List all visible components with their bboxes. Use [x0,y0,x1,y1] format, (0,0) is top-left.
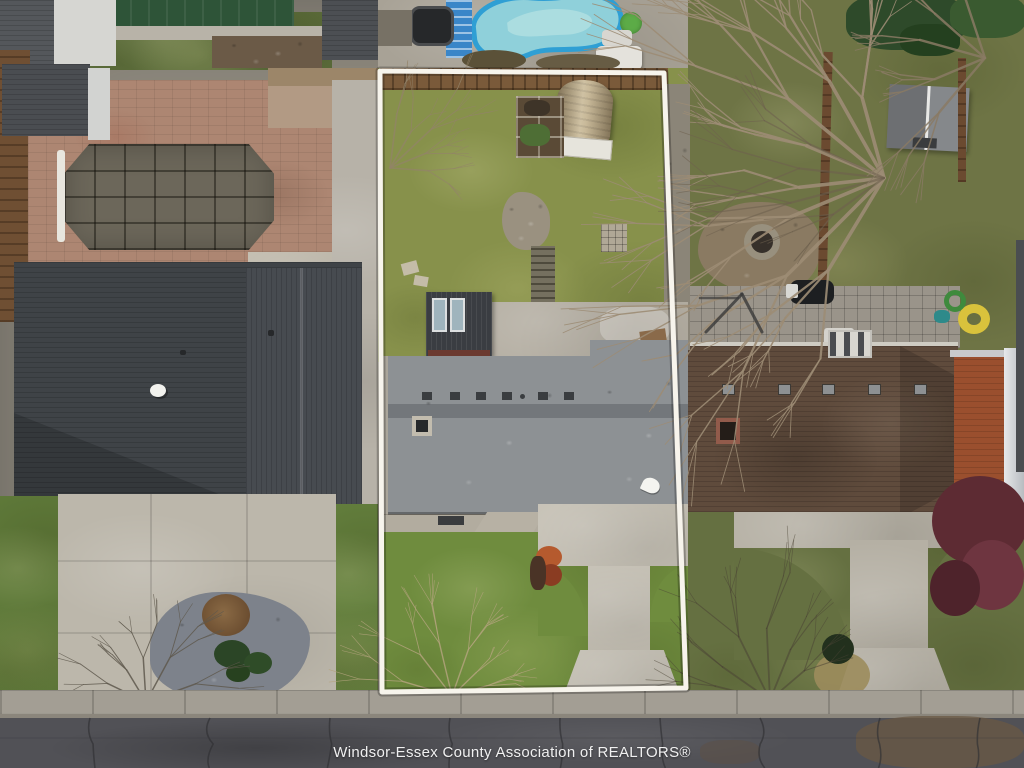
left-roof-ext-b [246,508,362,538]
far-house-fascia [950,350,1010,357]
quonset-doors [557,136,613,161]
brown-ornamental-bush [202,594,250,636]
left-lawn-strip-right [336,504,378,702]
realtor-watermark: Windsor-Essex County Association of REAL… [0,744,1024,761]
pool-toy-teal [934,310,950,323]
hot-tub [410,6,454,46]
roof-vent-dot-2 [180,350,186,355]
driveway-joint [58,560,336,562]
roof-vent [564,392,574,400]
brick-pool-patio [28,80,378,270]
pool-shed-roof [2,64,90,136]
roof-vent-small [520,394,525,399]
roof-vent [422,392,432,400]
satellite-dish-subject [640,475,663,496]
roof-vent [722,384,735,395]
tan-cabana [268,68,378,128]
right-backyard-grass [688,0,1024,352]
driveway-joint [246,494,248,706]
patio-canopy [378,10,412,46]
lot-back-fence [380,68,668,90]
house-left-gap-walk [380,356,392,514]
bbq-smoker [790,280,834,304]
pool-float-donut [958,304,990,334]
driveway-joint [150,494,152,706]
brick-chimney [716,418,740,444]
roof-vent [502,392,512,400]
road [0,718,1024,768]
sidewalk [0,690,1024,717]
white-patio-box [824,328,854,352]
patio-shrub [462,50,526,70]
burgundy-tree [932,476,1024,566]
patio-bright-patch [600,306,670,346]
fire-pit-dirt-patch [698,202,820,294]
right-garden-shed [886,84,969,152]
dark-shrub [822,634,854,664]
subject-driveway-apron [538,504,688,566]
left-corner-roof [0,0,54,66]
shed-skylight [450,298,465,332]
evergreen-canopy [846,0,966,50]
right-roof-hip-shade [900,346,958,518]
right-roof-eave-shadow [688,514,958,518]
white-storage-tent [596,46,642,70]
pool-deck-band [96,26,342,40]
aerial-photo-residential-lot: Windsor-Essex County Association of REAL… [0,0,1024,768]
road-leaf-stain [856,716,1024,768]
rooftop-structure [828,330,872,358]
right-driveway-flare [834,648,956,706]
curb [0,714,1024,720]
tree-branches-layer [0,0,1024,768]
right-fence-short [958,58,966,182]
stepping-stone [413,275,429,287]
left-roof-ext-a [128,504,260,530]
left-top-lawn [90,12,332,70]
pool-steps-blue [446,0,472,58]
subject-chimney [412,416,432,436]
red-shrub-shadow [530,556,546,590]
shed-ridge [924,86,930,150]
right-driveway-stem [850,540,928,705]
far-edge-dark-roof [1016,240,1024,472]
subject-roof-main [388,356,590,514]
roof-vent [538,392,548,400]
subject-eave-shadow [388,512,688,516]
property-boundary-outline [0,0,1024,768]
right-roof-fascia [688,342,958,348]
left-driveway [58,494,336,706]
patio-walkway [248,252,378,314]
quonset-shed [553,78,615,149]
patio-stone-pad [601,224,627,252]
kidney-pool [465,0,642,75]
evergreen-shrub [244,652,272,674]
left-wood-fence [0,50,30,322]
road-leaf-stain [700,740,760,764]
patio-shrub [536,54,620,72]
lawn-curve-fill [538,566,588,636]
burgundy-tree [930,560,980,616]
door-mat [438,516,464,525]
lot-front-lawn [380,532,688,694]
shed-shade [886,84,927,150]
patio-wood-board [639,328,666,344]
shed-red-sill [428,350,490,356]
red-shrub [536,546,562,568]
subject-driveway-flare [564,650,680,694]
lot-rear-patio [476,302,688,360]
lawn-curve-fill [928,548,960,618]
garden-raised-beds [516,96,564,158]
left-roof-valley-shadow [14,400,254,508]
left-house-roof-wing [246,268,362,512]
garden-green-patch [520,124,550,146]
roof-vent [822,384,835,395]
shed-door [912,137,936,148]
fire-pit [744,224,780,260]
gravel-landscape-bed [150,592,310,702]
pool-float-green [944,290,966,312]
evergreen-canopy [900,24,960,56]
far-house-gable [1004,348,1024,504]
lawn-curve-fill [650,566,688,622]
roof-vent [778,384,791,395]
left-house-roof-main [14,262,362,508]
roof-vent [476,392,486,400]
side-walkway-strip [332,80,378,510]
roof-vent [450,392,460,400]
roof-vent-dot-1 [268,330,274,336]
satellite-dish-left [150,384,166,397]
shed-skylight [432,298,447,332]
white-garage [52,0,116,66]
burgundy-tree [960,540,1024,610]
upper-right-roof-corner [322,0,378,60]
right-house-roof [688,346,958,518]
bbq-cart-white [786,284,798,298]
mid-fence [816,52,832,338]
lawn-curve-fill [734,548,850,660]
lot-backyard-grass [378,68,688,362]
diving-board [57,150,65,242]
top-pool-patio [378,0,690,70]
board-walk-steps [531,246,555,306]
left-front-lawn [0,496,60,702]
driveway-joint [58,632,336,634]
evergreen-canopy [950,0,1024,38]
white-lounge-chair [602,30,632,46]
garden-debris [212,36,322,68]
right-paver-patio [688,286,960,348]
far-house-orange-roof [954,356,1006,504]
right-garage-apron [734,512,960,548]
dry-grass-patch [814,652,870,698]
subject-driveway-stem [588,566,650,652]
evergreen-shrub [226,664,250,682]
small-dark-shed [426,292,492,356]
subject-roof-extension [590,340,688,514]
red-shrub [540,564,562,586]
subject-roof-ridge-band [388,404,688,418]
pool-shed-wall [88,68,110,140]
compost-patch [524,100,550,116]
front-walk-diagonal [462,512,546,552]
left-roof-ridge-highlight [300,268,303,512]
roof-vent [914,384,927,395]
front-walk [384,515,590,535]
road-cracks [0,0,1024,768]
stepping-stone [401,260,420,276]
evergreen-shrub [214,640,250,668]
dirt-worn-patch [502,192,550,250]
covered-pool [64,144,274,250]
roof-vent [868,384,881,395]
tan-cabana-roofband [268,68,378,86]
lot-side-gravel-path [664,84,690,350]
green-patio-table [620,12,642,34]
green-pool-cover [112,0,294,28]
right-front-lawn [688,512,1024,704]
